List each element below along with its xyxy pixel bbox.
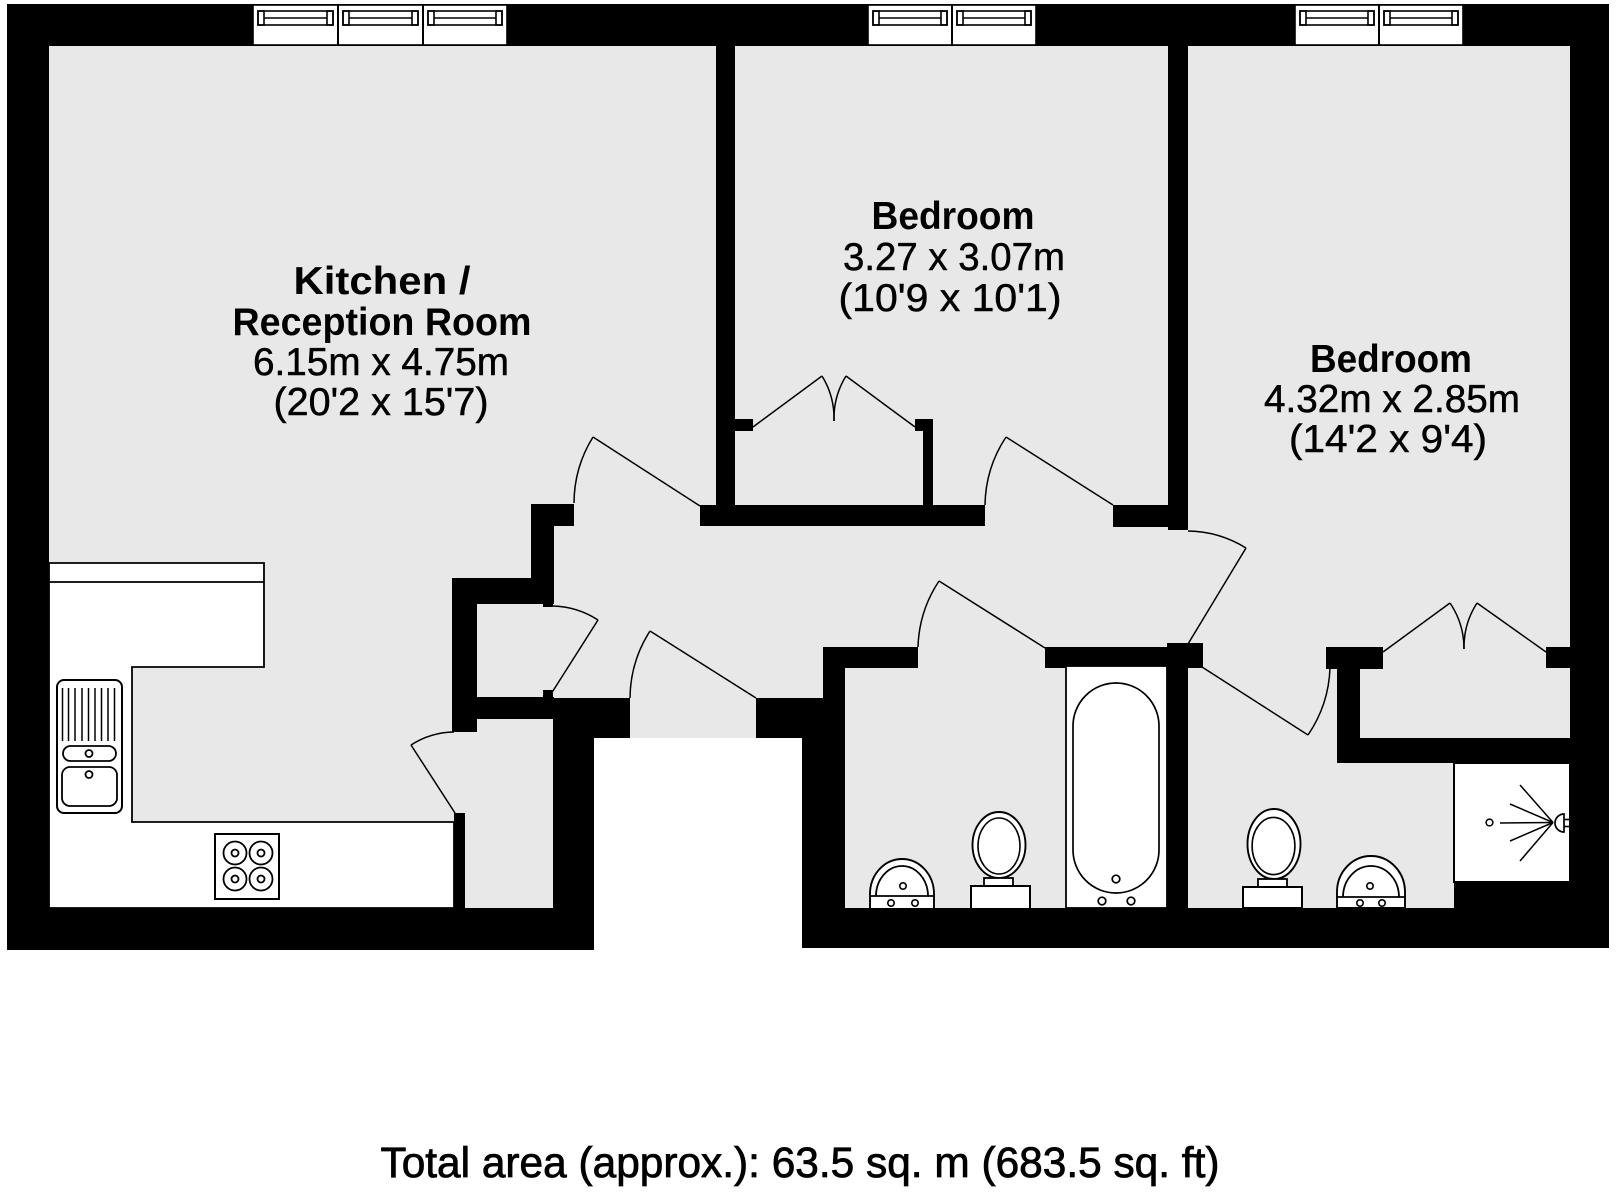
svg-text:Reception Room: Reception Room xyxy=(233,301,532,344)
svg-text:Bedroom: Bedroom xyxy=(1310,338,1472,381)
svg-text:Bedroom: Bedroom xyxy=(872,195,1035,238)
svg-text:Kitchen /: Kitchen / xyxy=(294,260,471,303)
svg-text:3.27 x 3.07m: 3.27 x 3.07m xyxy=(843,236,1065,279)
svg-text:(14'2 x 9'4): (14'2 x 9'4) xyxy=(1289,418,1487,461)
svg-text:(20'2 x 15'7): (20'2 x 15'7) xyxy=(274,381,489,424)
svg-text:Total area (approx.): 63.5 sq.: Total area (approx.): 63.5 sq. m (683.5 … xyxy=(381,1139,1220,1187)
svg-text:(10'9 x 10'1): (10'9 x 10'1) xyxy=(839,277,1062,320)
svg-text:4.32m x 2.85m: 4.32m x 2.85m xyxy=(1264,378,1520,421)
svg-text:6.15m x 4.75m: 6.15m x 4.75m xyxy=(253,341,509,384)
